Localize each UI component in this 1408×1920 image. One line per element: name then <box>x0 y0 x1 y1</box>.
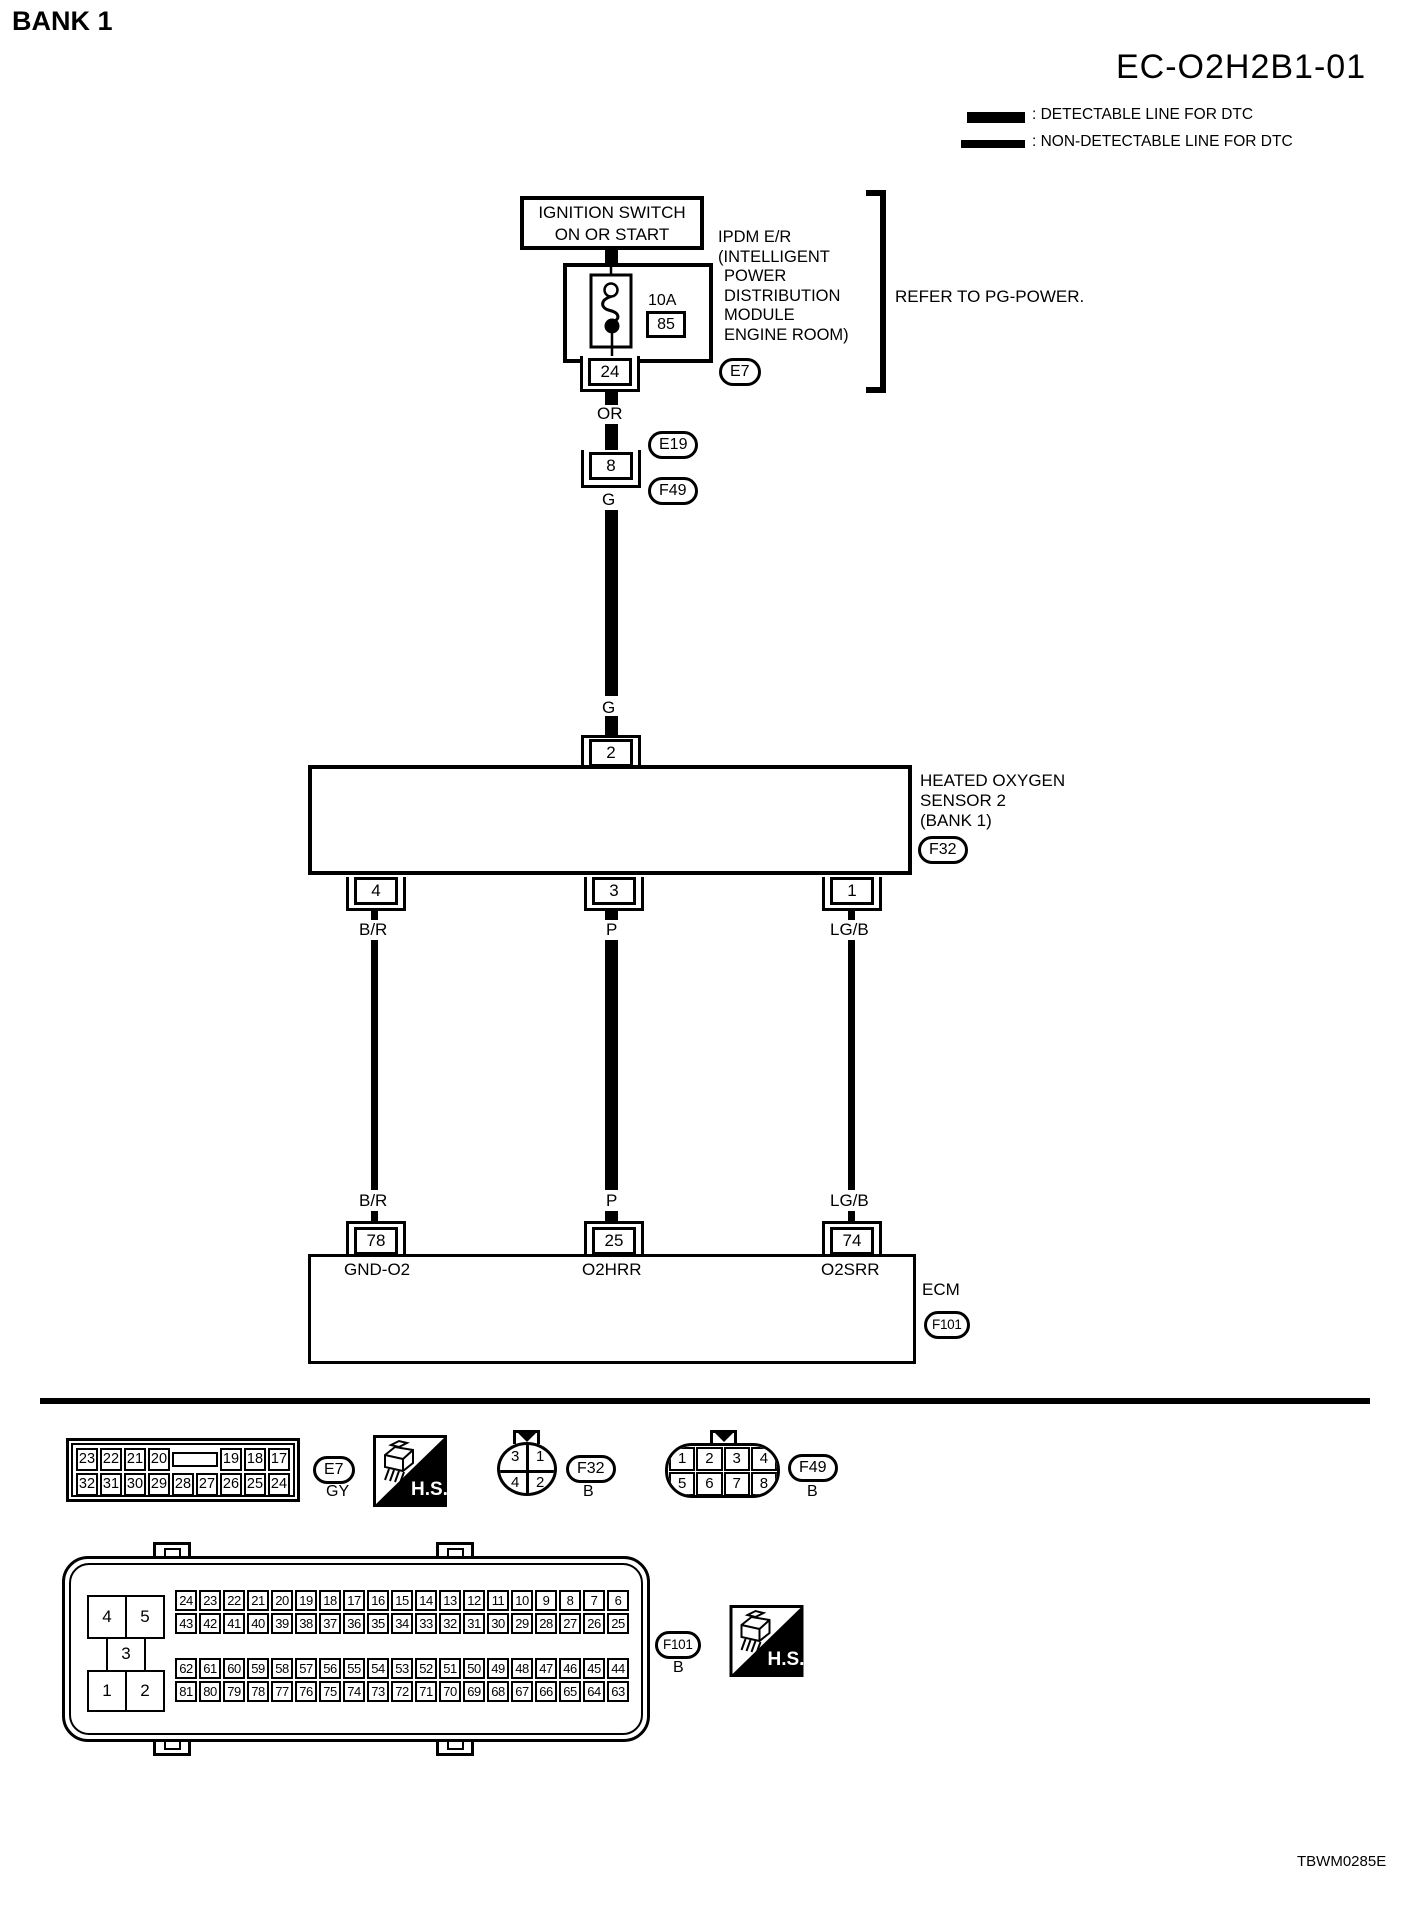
ecm-signal-o2srr: O2SRR <box>821 1260 880 1280</box>
ipdm-name-line: POWER <box>724 267 786 286</box>
pin-25: 25 <box>592 1227 636 1255</box>
view-color-f32: B <box>583 1483 594 1501</box>
pin-cell: 77 <box>271 1681 293 1702</box>
pin-cell: 79 <box>223 1681 245 1702</box>
sensor-box <box>308 765 912 875</box>
pin-cell: 5 <box>669 1472 695 1496</box>
pin-cell: 2 <box>536 1474 544 1491</box>
pin-4: 4 <box>354 877 398 905</box>
wire-color-lgb-upper: LG/B <box>830 920 869 940</box>
pin-cell: 11 <box>487 1590 509 1611</box>
pin-cell: 29 <box>511 1613 533 1634</box>
connector-view-f32: 3 1 4 2 <box>497 1442 557 1496</box>
ignition-switch-line2: ON OR START <box>524 224 700 246</box>
pin-78: 78 <box>354 1227 398 1255</box>
pin-cell: 42 <box>199 1613 221 1634</box>
connector-code-f49: F49 <box>648 477 698 505</box>
wire-br <box>371 940 378 1190</box>
bracket-top-hook <box>866 190 880 196</box>
pin-cell: 52 <box>415 1658 437 1679</box>
pin-cell: 18 <box>319 1590 341 1611</box>
pin-8: 8 <box>589 452 633 480</box>
ignition-switch-box: IGNITION SWITCH ON OR START <box>520 196 704 250</box>
pin-cell: 24 <box>175 1590 197 1611</box>
pin-cell: 4 <box>751 1447 777 1471</box>
pin-3: 3 <box>592 877 636 905</box>
hs-label: H.S. <box>411 1479 447 1500</box>
pin-cell: 20 <box>148 1448 170 1471</box>
pin-1: 1 <box>830 877 874 905</box>
view-code-f32: F32 <box>566 1455 616 1483</box>
pin-cell: 73 <box>367 1681 389 1702</box>
pin-cell: 30 <box>487 1613 509 1634</box>
pin-cell: 13 <box>439 1590 461 1611</box>
ipdm-name-line: IPDM E/R <box>718 228 791 247</box>
pin-cell: 31 <box>463 1613 485 1634</box>
legend-detectable-line-sample <box>967 112 1025 123</box>
wire-br-stub <box>371 911 378 920</box>
pin-cell: 19 <box>295 1590 317 1611</box>
pin-cell: 3 <box>106 1637 146 1672</box>
pin-cell: 14 <box>415 1590 437 1611</box>
pin-cell: 25 <box>607 1613 629 1634</box>
pin-cell: 22 <box>223 1590 245 1611</box>
pin-cell: 58 <box>271 1658 293 1679</box>
pin-cell: 18 <box>244 1448 266 1471</box>
wire-color-lgb-lower: LG/B <box>830 1191 869 1211</box>
pin-cell: 2 <box>125 1670 165 1712</box>
fuse-rating-label: 10A <box>648 292 676 310</box>
pin-cell: 26 <box>583 1613 605 1634</box>
pin-cell: 4 <box>511 1474 519 1491</box>
pin-cell: 47 <box>535 1658 557 1679</box>
ipdm-connector-code: E7 <box>719 358 761 386</box>
wire-g <box>605 510 618 696</box>
pin-cell: 43 <box>175 1613 197 1634</box>
figure-code: TBWM0285E <box>1297 1853 1386 1870</box>
pin-cell: 81 <box>175 1681 197 1702</box>
pin-74: 74 <box>830 1227 874 1255</box>
pin-cell: 59 <box>247 1658 269 1679</box>
pin-cell: 55 <box>343 1658 365 1679</box>
pin-cell: 15 <box>391 1590 413 1611</box>
pin-cell: 33 <box>415 1613 437 1634</box>
pin-cell: 31 <box>100 1473 122 1496</box>
ecm-connector-code: F101 <box>924 1311 970 1339</box>
pin-cell: 51 <box>439 1658 461 1679</box>
pin-cell: 21 <box>124 1448 146 1471</box>
f49-key-notch <box>710 1430 737 1444</box>
ipdm-name-line: (INTELLIGENT <box>718 248 830 267</box>
pin-cell: 17 <box>268 1448 290 1471</box>
pin-cell: 75 <box>319 1681 341 1702</box>
view-code-e7: E7 <box>313 1456 355 1484</box>
pin-cell: 61 <box>199 1658 221 1679</box>
pin-cell: 12 <box>463 1590 485 1611</box>
pin-cell: 44 <box>607 1658 629 1679</box>
bracket-bottom-hook <box>866 387 880 393</box>
diagram-code: EC-O2H2B1-01 <box>1116 48 1366 87</box>
pin-24: 24 <box>588 358 632 386</box>
pin-cell: 8 <box>751 1472 777 1496</box>
pin-cell: 3 <box>724 1447 750 1471</box>
legend-detectable-label: : DETECTABLE LINE FOR DTC <box>1032 106 1253 124</box>
pin-cell: 8 <box>559 1590 581 1611</box>
sensor-name-line: SENSOR 2 <box>920 791 1006 811</box>
pin-cell: 2 <box>696 1447 722 1471</box>
pin-cell: 7 <box>724 1472 750 1496</box>
view-color-f49: B <box>807 1483 818 1501</box>
refer-note: REFER TO PG-POWER. <box>895 287 1084 307</box>
connector-key-slot <box>172 1452 218 1467</box>
pin-cell: 65 <box>559 1681 581 1702</box>
pin-cell: 1 <box>669 1447 695 1471</box>
ipdm-box <box>563 263 713 363</box>
pin-cell: 21 <box>247 1590 269 1611</box>
pin-cell: 46 <box>559 1658 581 1679</box>
wire-color-or: OR <box>597 404 623 424</box>
legend-non-detectable-label: : NON-DETECTABLE LINE FOR DTC <box>1032 133 1293 151</box>
pin-cell: 27 <box>196 1473 218 1496</box>
pin-cell: 22 <box>100 1448 122 1471</box>
wire-lgb <box>848 940 855 1190</box>
ecm-signal-gnd-o2: GND-O2 <box>344 1260 410 1280</box>
pin-cell: 30 <box>124 1473 146 1496</box>
view-code-f101: F101 <box>655 1631 701 1659</box>
pin-cell: 7 <box>583 1590 605 1611</box>
pin-cell: 29 <box>148 1473 170 1496</box>
pin-cell: 34 <box>391 1613 413 1634</box>
pin-cell: 5 <box>125 1595 165 1639</box>
pin-cell: 23 <box>76 1448 98 1471</box>
pin-cell: 50 <box>463 1658 485 1679</box>
pin-cell: 48 <box>511 1658 533 1679</box>
pin-cell: 78 <box>247 1681 269 1702</box>
pin-cell: 16 <box>367 1590 389 1611</box>
wire-p <box>605 940 618 1190</box>
pin-cell: 53 <box>391 1658 413 1679</box>
pin-cell: 63 <box>607 1681 629 1702</box>
pin-cell: 64 <box>583 1681 605 1702</box>
pin-cell: 25 <box>244 1473 266 1496</box>
pin-cell: 17 <box>343 1590 365 1611</box>
pin-cell: 60 <box>223 1658 245 1679</box>
pin-cell: 3 <box>511 1448 519 1465</box>
pin-cell: 28 <box>172 1473 194 1496</box>
wire-stub-ignition <box>605 250 618 264</box>
sensor-connector-code: F32 <box>918 836 968 864</box>
bank-title: BANK 1 <box>12 6 113 37</box>
view-color-f101: B <box>673 1659 684 1677</box>
ecm-name: ECM <box>922 1280 960 1300</box>
legend-non-detectable-line-sample <box>961 140 1025 148</box>
connector-code-e19: E19 <box>648 431 698 459</box>
pin-cell: 40 <box>247 1613 269 1634</box>
fuse-number-box: 85 <box>646 311 686 338</box>
ipdm-name-line: ENGINE ROOM) <box>724 326 849 345</box>
bracket-vertical <box>880 190 886 393</box>
pin-cell: 72 <box>391 1681 413 1702</box>
pin-cell: 27 <box>559 1613 581 1634</box>
sensor-name-line: HEATED OXYGEN <box>920 771 1065 791</box>
wire-p-stub <box>605 911 618 920</box>
pin-cell: 56 <box>319 1658 341 1679</box>
pin-cell: 41 <box>223 1613 245 1634</box>
wire-or <box>605 424 618 452</box>
pin-cell: 1 <box>87 1670 127 1712</box>
pin-cell: 71 <box>415 1681 437 1702</box>
pin-2: 2 <box>589 739 633 767</box>
pin-cell: 26 <box>220 1473 242 1496</box>
wire-color-br-lower: B/R <box>359 1191 387 1211</box>
view-code-f49: F49 <box>788 1454 838 1482</box>
pin-cell: 67 <box>511 1681 533 1702</box>
pin-cell: 76 <box>295 1681 317 1702</box>
wire-lgb-stub <box>848 911 855 920</box>
pin-cell: 80 <box>199 1681 221 1702</box>
pin-cell: 35 <box>367 1613 389 1634</box>
pin-cell: 66 <box>535 1681 557 1702</box>
pin-cell: 6 <box>696 1472 722 1496</box>
pin-cell: 6 <box>607 1590 629 1611</box>
ipdm-name-line: MODULE <box>724 306 795 325</box>
pin-cell: 49 <box>487 1658 509 1679</box>
wire-color-p-lower: P <box>606 1191 617 1211</box>
wire-color-br-upper: B/R <box>359 920 387 940</box>
pin-cell: 54 <box>367 1658 389 1679</box>
pin-cell: 68 <box>487 1681 509 1702</box>
pin-cell: 62 <box>175 1658 197 1679</box>
pin-cell: 69 <box>463 1681 485 1702</box>
connector-view-f49: 1234 5678 <box>665 1443 780 1498</box>
pin-cell: 9 <box>535 1590 557 1611</box>
pin-cell: 23 <box>199 1590 221 1611</box>
pin-cell: 74 <box>343 1681 365 1702</box>
pin-cell: 20 <box>271 1590 293 1611</box>
ignition-switch-line1: IGNITION SWITCH <box>524 202 700 224</box>
pin-cell: 57 <box>295 1658 317 1679</box>
wire-color-p-upper: P <box>606 920 617 940</box>
connector-view-f101: 4 5 3 1 2 242322212019181716151413121110… <box>62 1556 650 1742</box>
harness-side-icon: H.S. <box>728 1605 805 1677</box>
fuse-symbol <box>589 263 633 360</box>
section-divider <box>40 1398 1370 1404</box>
view-color-e7: GY <box>326 1483 349 1501</box>
pin-cell: 4 <box>87 1595 127 1639</box>
ecm-signal-o2hrr: O2HRR <box>582 1260 642 1280</box>
pin-cell: 19 <box>220 1448 242 1471</box>
wire-color-g-upper: G <box>602 490 615 510</box>
pin-cell: 32 <box>439 1613 461 1634</box>
pin-cell: 45 <box>583 1658 605 1679</box>
harness-side-icon: H.S. <box>373 1435 447 1507</box>
pin-cell: 28 <box>535 1613 557 1634</box>
wiring-diagram-page: BANK 1 EC-O2H2B1-01 : DETECTABLE LINE FO… <box>0 0 1408 1920</box>
pin-cell: 1 <box>536 1448 544 1465</box>
pin-cell: 37 <box>319 1613 341 1634</box>
wire-color-g-lower: G <box>602 698 615 718</box>
pin-cell: 32 <box>76 1473 98 1496</box>
hs-label: H.S. <box>768 1649 805 1670</box>
pin-cell: 70 <box>439 1681 461 1702</box>
sensor-name-line: (BANK 1) <box>920 811 992 831</box>
pin-cell: 24 <box>268 1473 290 1496</box>
pin-cell: 36 <box>343 1613 365 1634</box>
pin-cell: 39 <box>271 1613 293 1634</box>
ipdm-name-line: DISTRIBUTION <box>724 287 840 306</box>
pin-cell: 10 <box>511 1590 533 1611</box>
pin-cell: 38 <box>295 1613 317 1634</box>
connector-view-e7: 23222120 191817 323130292827262524 <box>66 1438 300 1502</box>
